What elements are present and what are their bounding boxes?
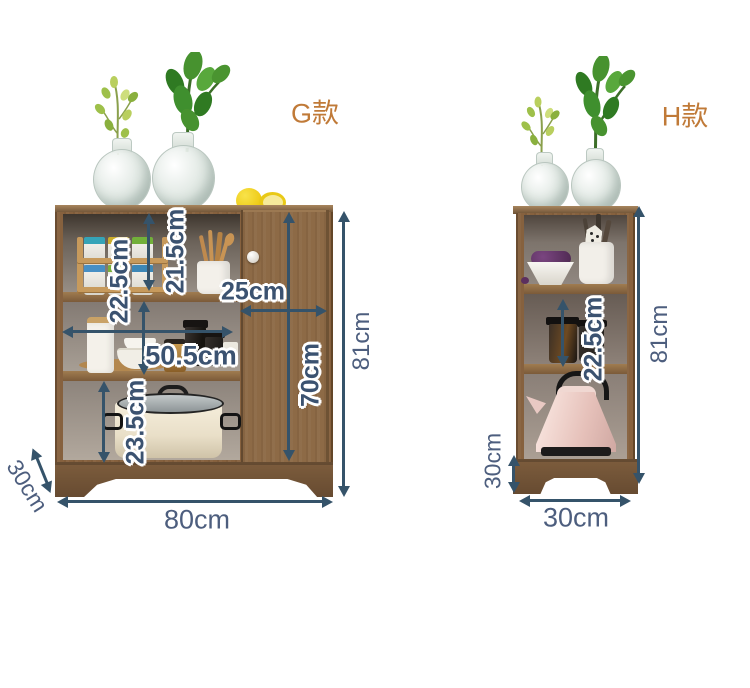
h-grape-on-shelf [521,277,529,284]
g-base-arch-cutout [83,479,318,498]
g-width-label: 80cm [164,507,230,534]
g-vase1 [93,149,151,210]
h-model-label: H款 [662,95,709,134]
g-height-arrow [342,221,345,487]
g-vase2 [152,145,215,211]
h-height-label: 81cm [648,305,672,364]
g-bottom-opening-arrow [102,391,105,453]
g-door-height-arrow [287,222,290,451]
g-door-width-arrow [250,309,317,312]
g-bottom-opening-label: 23.5cm [124,380,149,465]
g-pot-handle-right [220,413,241,430]
g-open-width-arrow [72,330,223,333]
g-door-knob [247,251,259,263]
g-model-label: G款 [291,92,339,131]
g-open-width-label: 50.5cm [145,343,237,370]
g-spice-rack-post-left [77,237,83,294]
h-opening-label: 22.5cm [582,297,607,382]
h-depth-label: 30cm [482,433,505,489]
g-door [241,210,329,463]
g-height-label: 81cm [350,312,374,371]
g-middle-opening-label: 22.5cm [108,239,133,324]
g-white-canister [87,317,114,373]
h-utensil-crock [579,242,614,284]
h-kettle-base [541,447,611,456]
h-width-label: 30cm [543,505,609,532]
g-top-opening-arrow [147,223,150,281]
h-vase2 [571,159,621,212]
g-top-opening-label: 21.5cm [164,209,189,294]
h-house-ornament-dots [590,232,593,235]
h-base-arch-cutout [540,478,611,495]
h-vase1 [521,162,569,212]
g-width-arrow [67,500,323,503]
h-shelf-board-1 [524,284,627,294]
g-pot-handle-left [102,413,123,430]
g-door-height-label: 70cm [299,343,324,407]
product-dimension-diagram: G款 H款 [0,0,750,688]
h-height-arrow [637,216,640,474]
h-depth-arrow [512,465,515,483]
h-opening-arrow [561,309,564,357]
g-door-width-label: 25cm [221,280,285,305]
h-plant-large [562,56,637,161]
